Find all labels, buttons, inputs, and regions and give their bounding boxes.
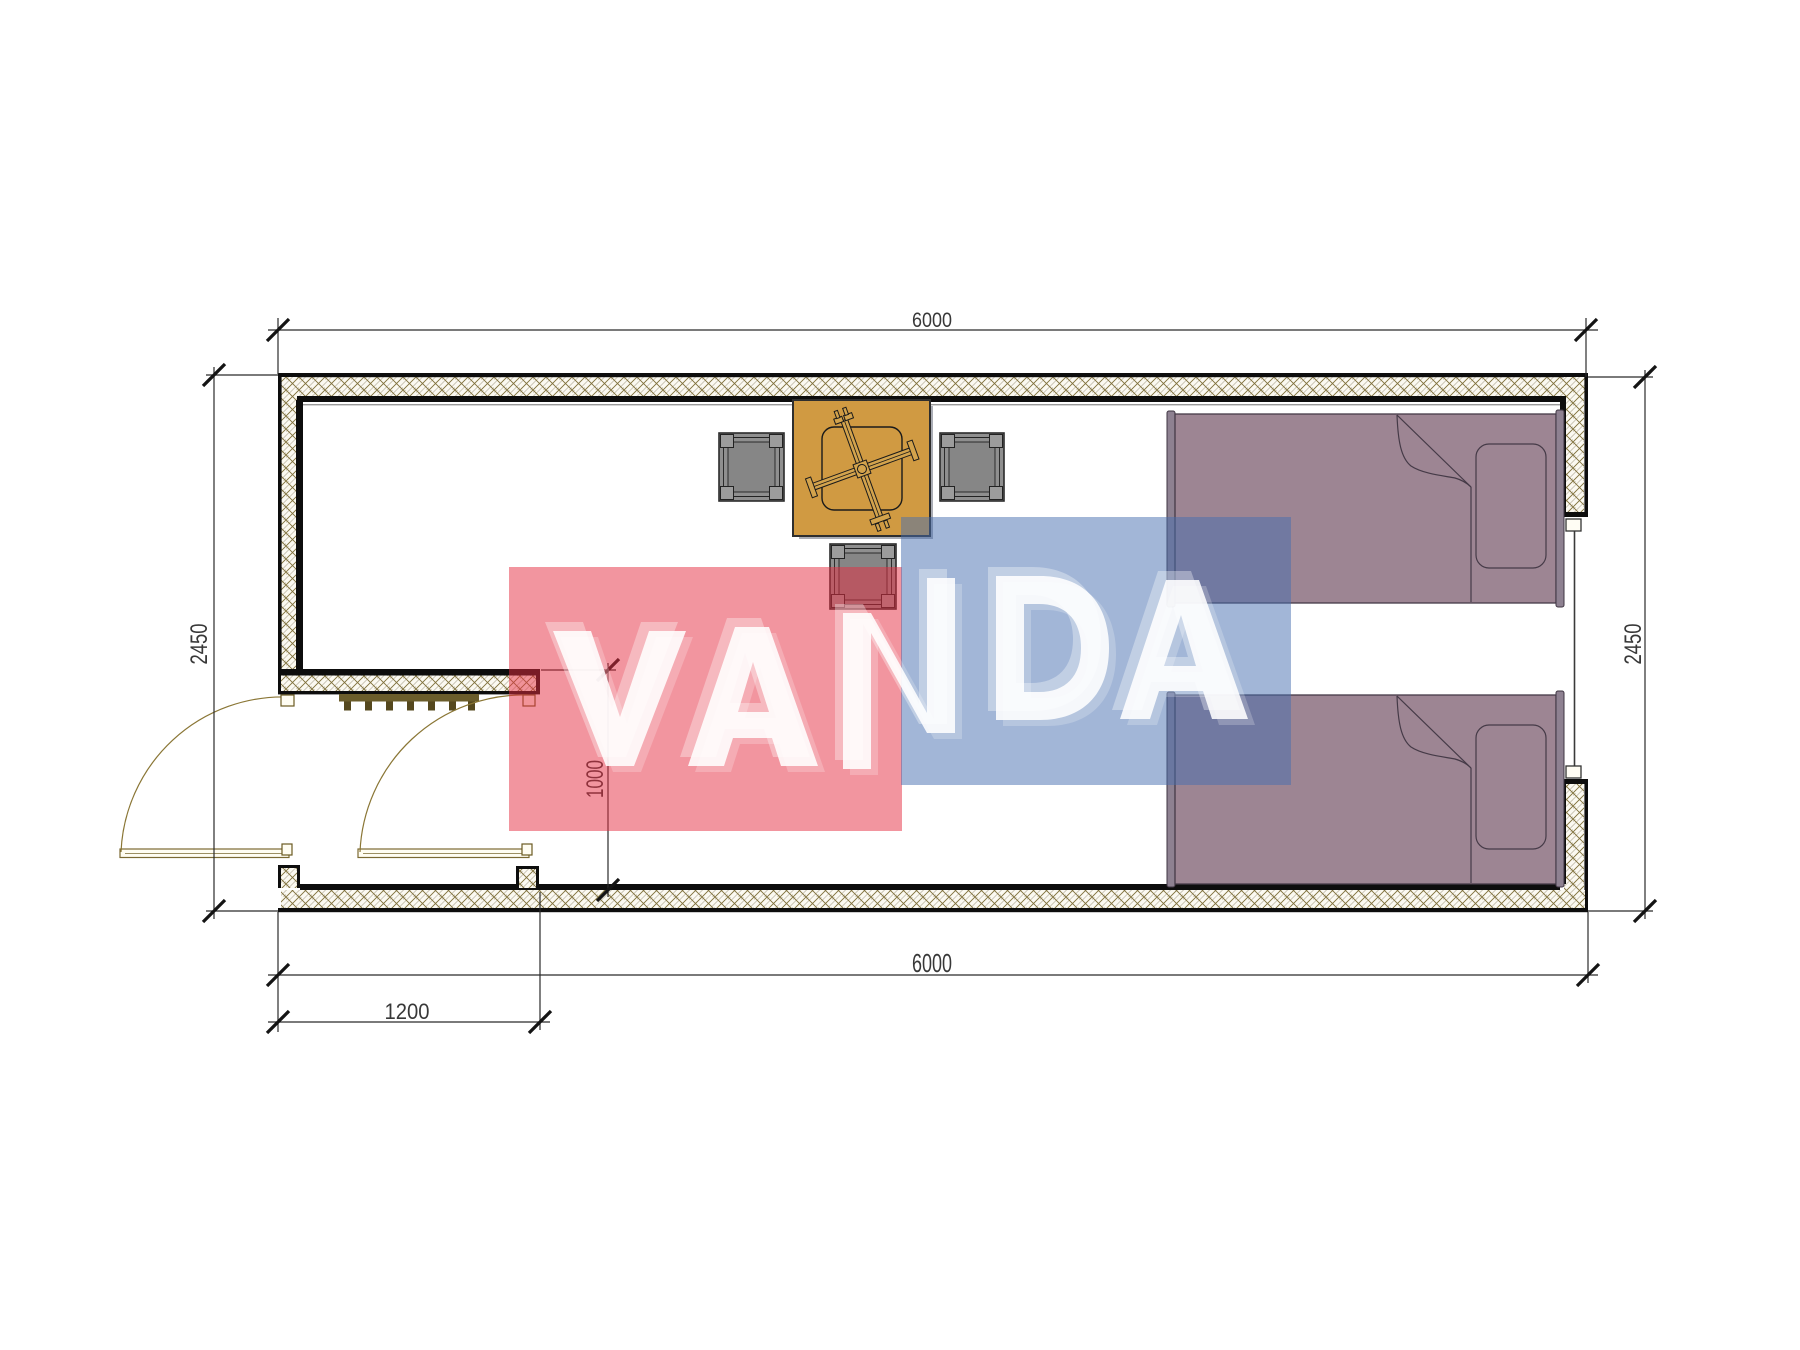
svg-text:2450: 2450 xyxy=(186,624,213,665)
svg-text:6000: 6000 xyxy=(912,309,952,332)
svg-text:6000: 6000 xyxy=(912,948,952,978)
svg-text:1200: 1200 xyxy=(385,999,430,1024)
svg-text:2450: 2450 xyxy=(1620,624,1647,665)
